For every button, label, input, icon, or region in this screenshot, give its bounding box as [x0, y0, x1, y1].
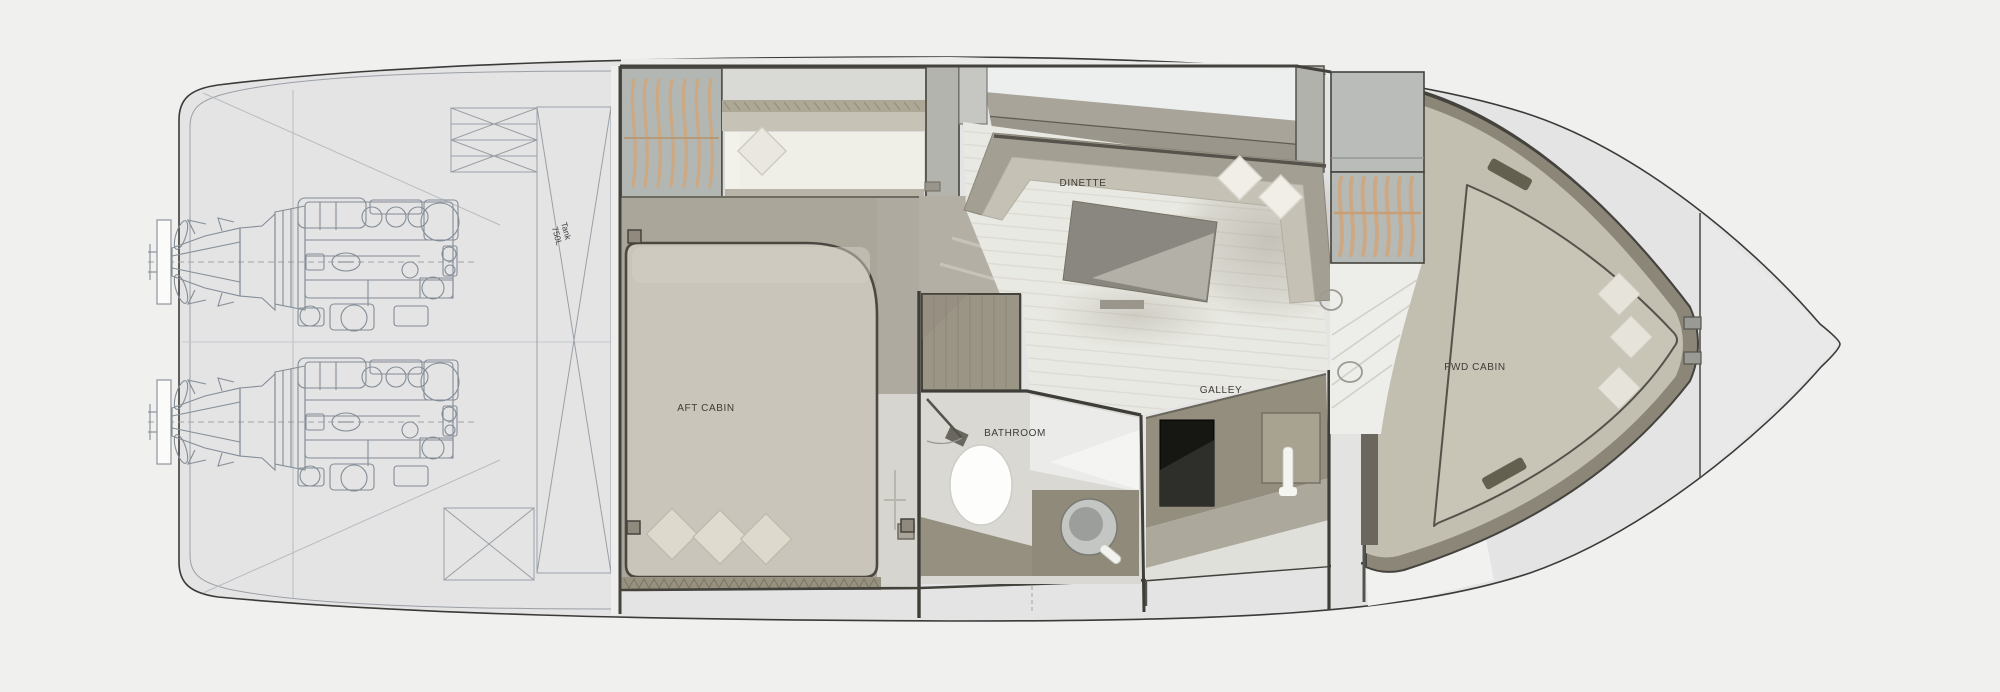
svg-text:DINETTE: DINETTE [1060, 178, 1107, 189]
svg-text:FWD CABIN: FWD CABIN [1444, 362, 1506, 373]
svg-text:BATHROOM: BATHROOM [984, 428, 1046, 439]
svg-text:GALLEY: GALLEY [1200, 385, 1243, 396]
svg-text:AFT CABIN: AFT CABIN [677, 403, 734, 414]
